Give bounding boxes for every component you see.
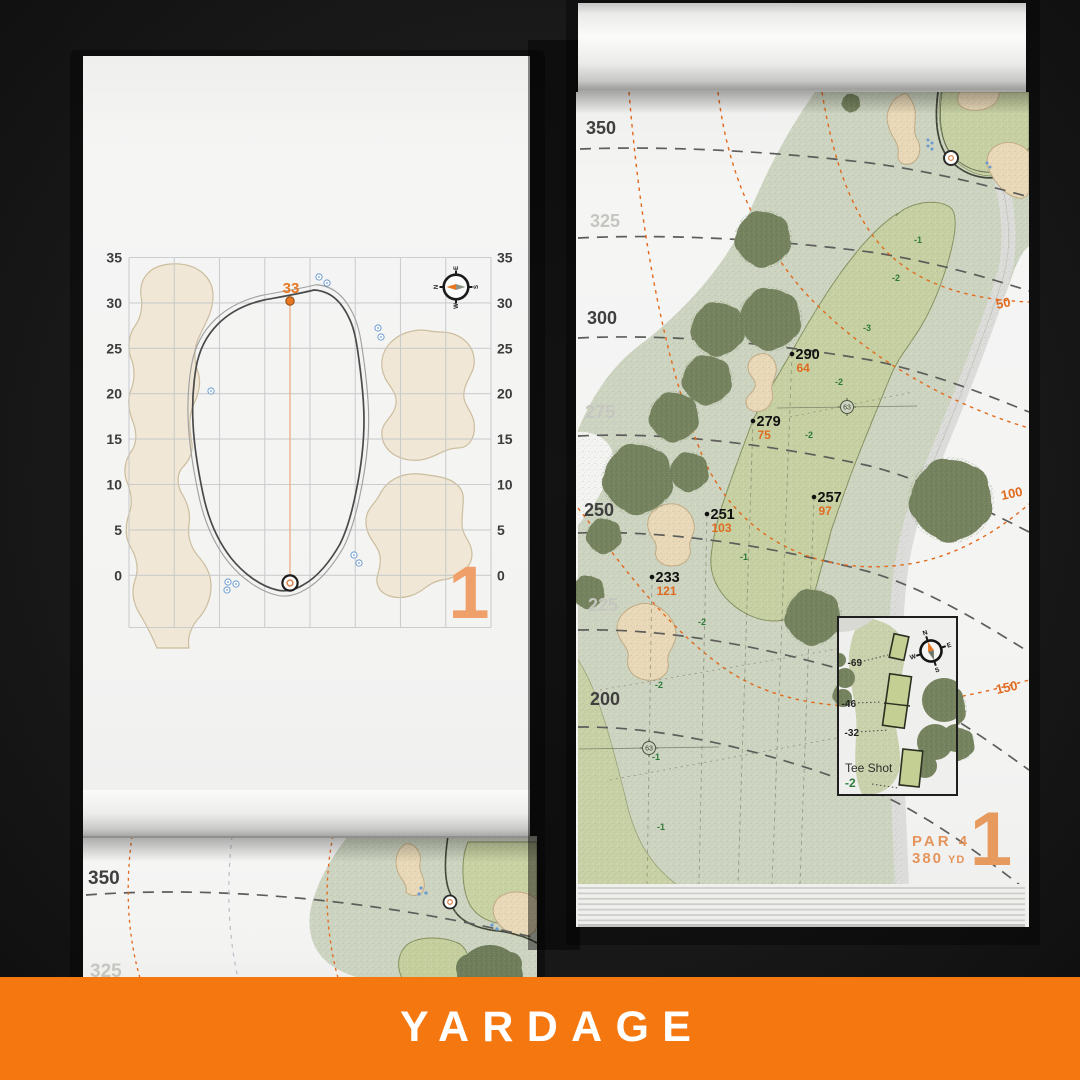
svg-text:-3: -3 <box>863 323 871 333</box>
svg-text:Tee Shot: Tee Shot <box>845 761 893 775</box>
svg-text:225: 225 <box>588 595 618 615</box>
svg-text:-2: -2 <box>845 776 856 790</box>
svg-text:-2: -2 <box>655 680 663 690</box>
svg-text:-1: -1 <box>657 822 665 832</box>
svg-text:-2: -2 <box>835 377 843 387</box>
svg-text:200: 200 <box>590 689 620 709</box>
svg-text:YD: YD <box>948 854 965 866</box>
svg-text:121: 121 <box>657 584 677 598</box>
svg-text:-2: -2 <box>892 273 900 283</box>
svg-text:275: 275 <box>585 402 615 422</box>
svg-text:-1: -1 <box>652 752 660 762</box>
svg-text:380: 380 <box>912 850 943 867</box>
svg-text:350: 350 <box>88 868 120 889</box>
svg-text:103: 103 <box>712 521 732 535</box>
svg-text:-46: -46 <box>842 699 857 710</box>
svg-text:-2: -2 <box>698 617 706 627</box>
svg-text:50: 50 <box>995 294 1012 312</box>
svg-text:75: 75 <box>758 428 772 442</box>
svg-text:1: 1 <box>970 797 1012 882</box>
svg-text:-2: -2 <box>805 430 813 440</box>
svg-text:300: 300 <box>587 308 617 328</box>
svg-text:-1: -1 <box>914 235 922 245</box>
svg-text:63: 63 <box>843 405 851 412</box>
svg-text:64: 64 <box>797 361 811 375</box>
svg-text:YARDAGE: YARDAGE <box>400 1003 704 1051</box>
svg-text:97: 97 <box>819 504 833 518</box>
svg-text:325: 325 <box>590 211 620 231</box>
svg-text:350: 350 <box>586 118 616 138</box>
svg-text:PAR 4: PAR 4 <box>912 833 970 850</box>
svg-text:-69: -69 <box>848 658 863 669</box>
svg-text:-32: -32 <box>845 728 860 739</box>
svg-text:-1: -1 <box>740 552 748 562</box>
svg-text:250: 250 <box>584 500 614 520</box>
